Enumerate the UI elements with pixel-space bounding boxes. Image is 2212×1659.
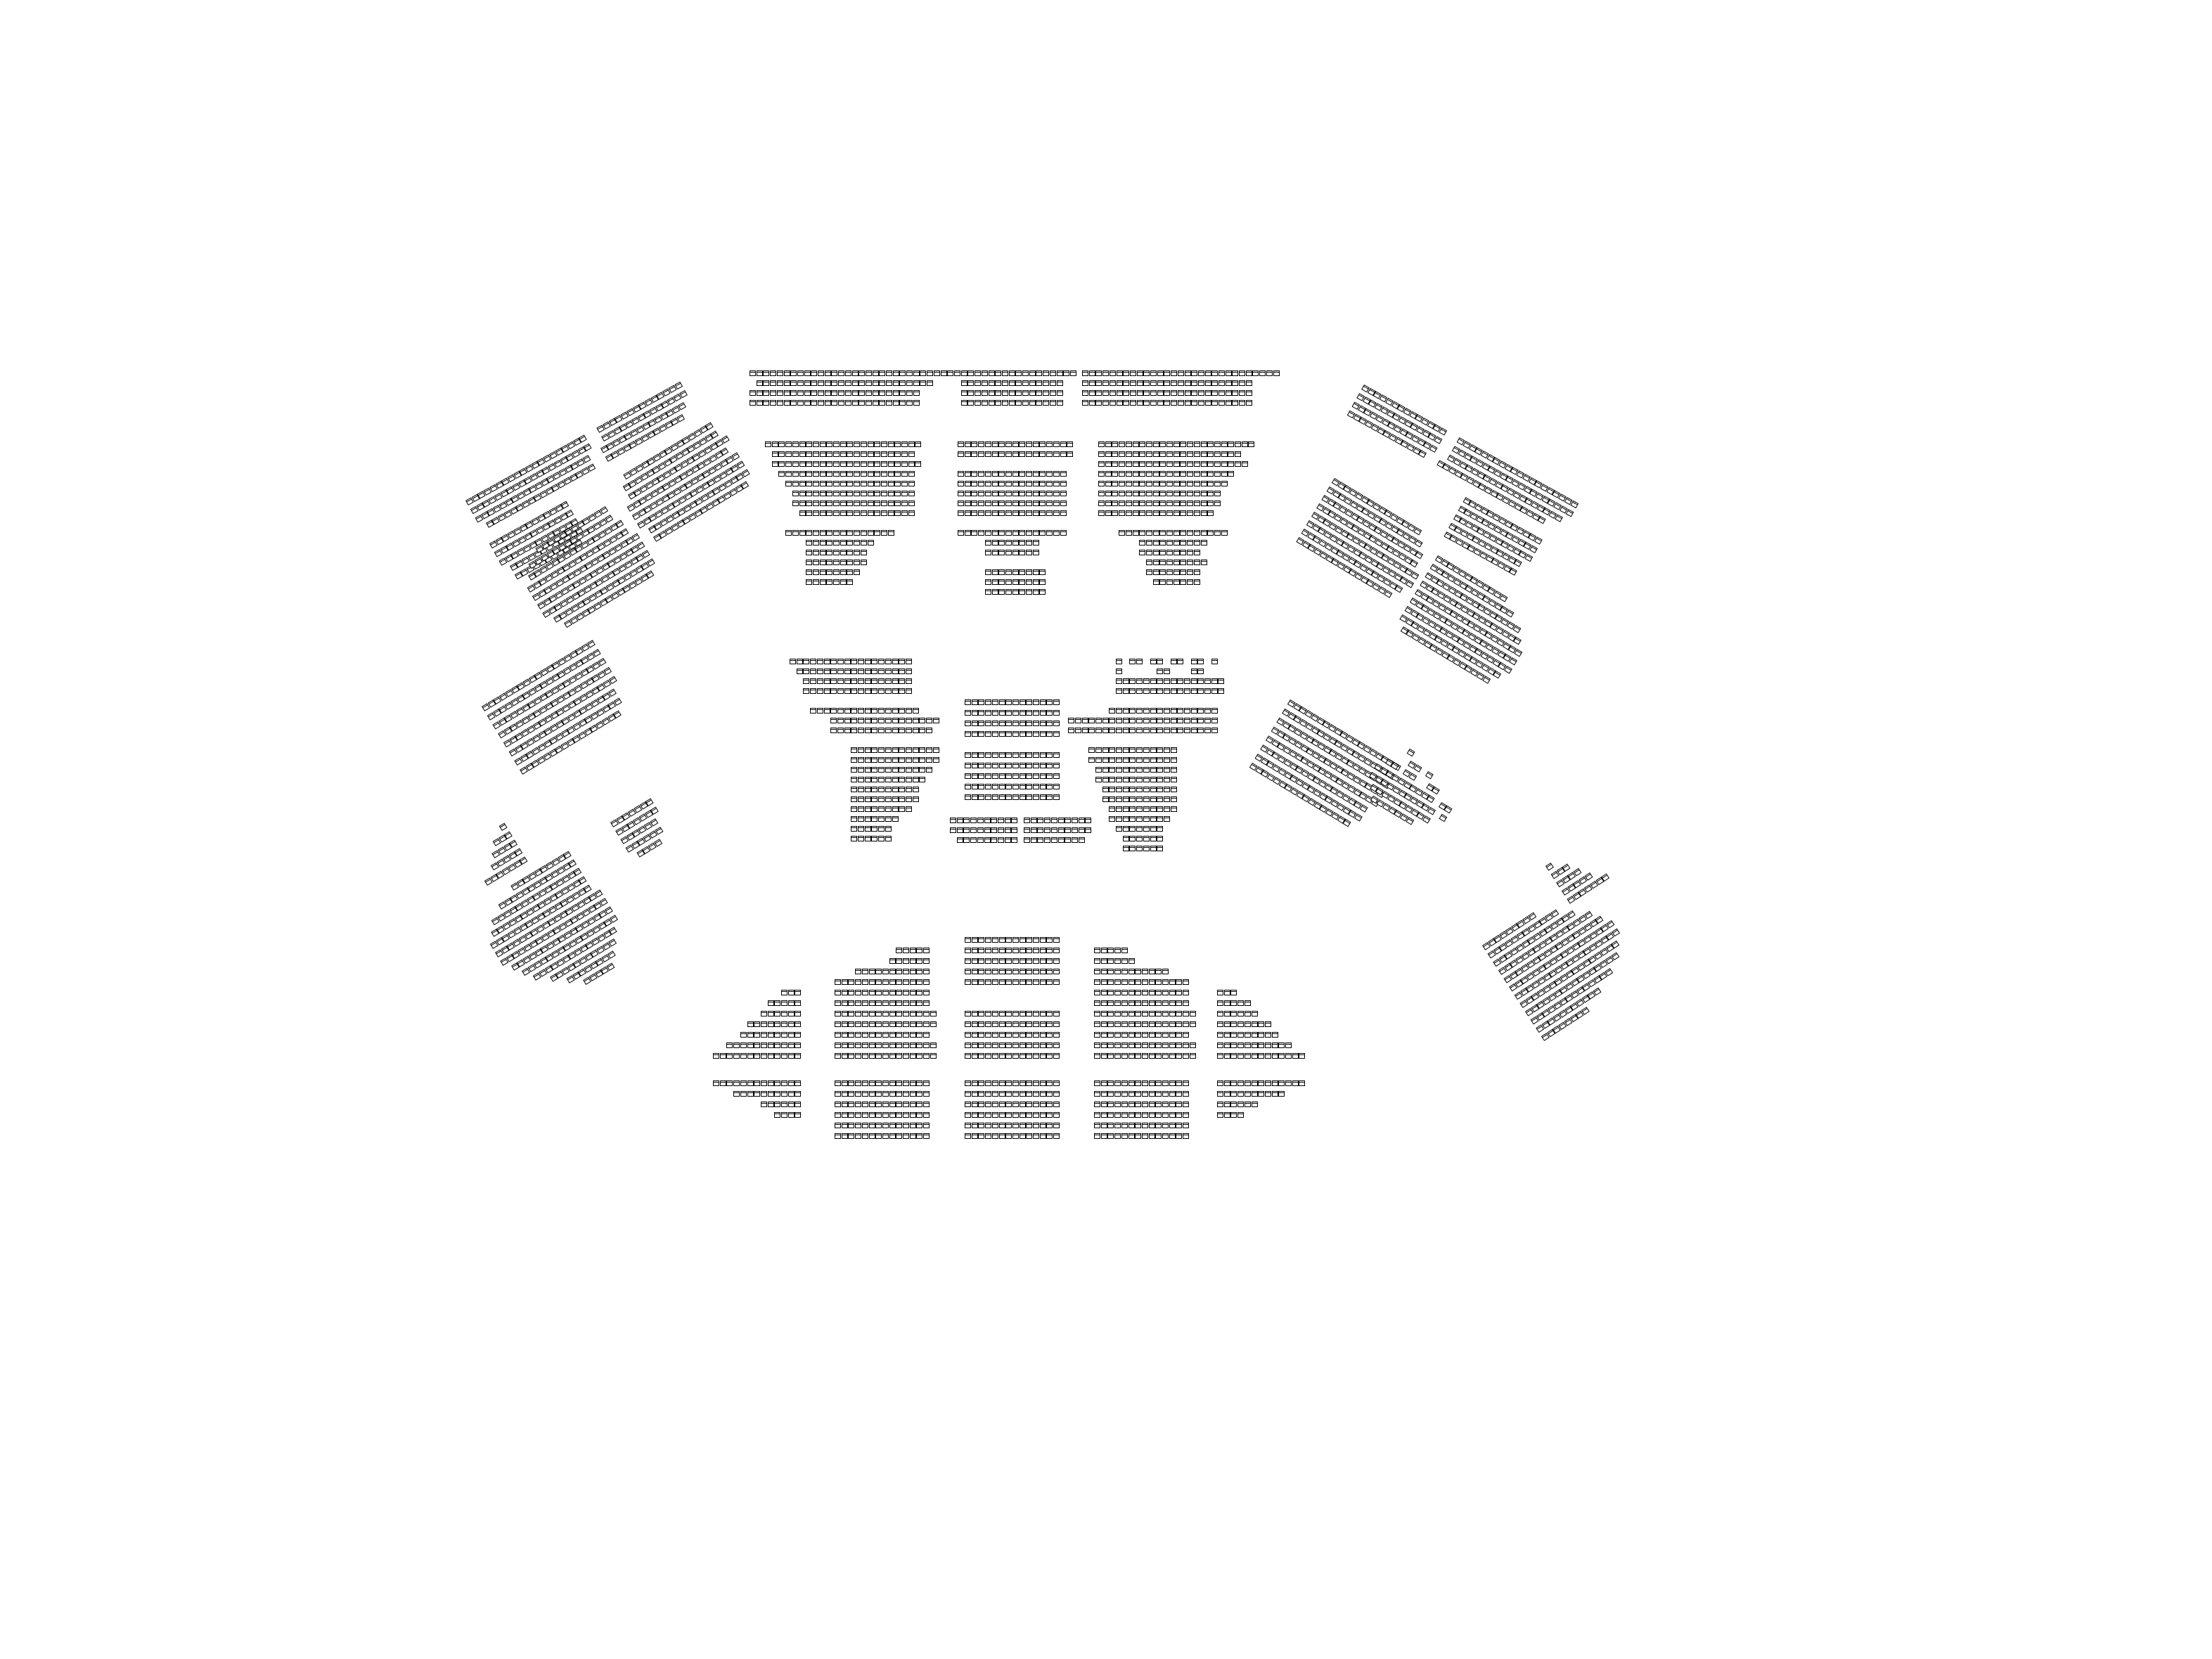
- seat[interactable]: [1183, 990, 1189, 995]
- seat[interactable]: [1019, 481, 1025, 486]
- seat[interactable]: [1102, 767, 1109, 773]
- seat[interactable]: [869, 1102, 875, 1107]
- seat[interactable]: [901, 471, 908, 477]
- seat[interactable]: [978, 1021, 984, 1027]
- seat[interactable]: [1109, 806, 1115, 812]
- seat[interactable]: [1119, 471, 1125, 477]
- seat[interactable]: [852, 390, 859, 396]
- seat[interactable]: [1129, 678, 1136, 684]
- seat[interactable]: [1116, 757, 1122, 763]
- seat[interactable]: [1107, 1000, 1114, 1006]
- seat[interactable]: [1157, 836, 1163, 841]
- seat[interactable]: [1012, 1053, 1019, 1059]
- seat[interactable]: [1129, 816, 1136, 822]
- seat[interactable]: [978, 937, 984, 943]
- seat[interactable]: [892, 796, 899, 802]
- seat[interactable]: [1171, 806, 1177, 812]
- seat[interactable]: [972, 1133, 978, 1139]
- seat[interactable]: [1015, 370, 1022, 376]
- seat[interactable]: [1136, 846, 1143, 851]
- seat[interactable]: [1123, 787, 1129, 792]
- seat[interactable]: [985, 501, 991, 506]
- seat[interactable]: [1020, 699, 1026, 705]
- seat[interactable]: [1173, 501, 1180, 506]
- seat[interactable]: [1053, 752, 1060, 758]
- seat[interactable]: [781, 1042, 787, 1048]
- seat[interactable]: [1009, 380, 1015, 386]
- seat[interactable]: [923, 1053, 930, 1059]
- seat[interactable]: [1285, 1080, 1292, 1086]
- seat[interactable]: [792, 491, 799, 496]
- seat[interactable]: [1088, 747, 1095, 753]
- seat[interactable]: [1159, 540, 1166, 546]
- seat[interactable]: [1067, 451, 1073, 457]
- seat[interactable]: [1157, 728, 1163, 733]
- seat[interactable]: [894, 481, 901, 486]
- seat[interactable]: [1265, 1032, 1271, 1038]
- seat[interactable]: [1039, 451, 1046, 457]
- seat[interactable]: [913, 728, 919, 733]
- seat[interactable]: [886, 370, 892, 376]
- seat[interactable]: [975, 380, 981, 386]
- seat[interactable]: [985, 471, 991, 477]
- seat[interactable]: [1169, 1032, 1176, 1038]
- seat[interactable]: [1112, 471, 1118, 477]
- seat[interactable]: [871, 728, 877, 733]
- seat[interactable]: [1114, 1011, 1121, 1016]
- seat[interactable]: [854, 530, 860, 536]
- seat[interactable]: [1040, 1080, 1046, 1086]
- seat[interactable]: [1226, 380, 1232, 386]
- seat[interactable]: [820, 501, 826, 506]
- seat[interactable]: [754, 1021, 760, 1027]
- seat[interactable]: [992, 1042, 998, 1048]
- seat[interactable]: [965, 1123, 971, 1128]
- seat[interactable]: [1128, 1053, 1135, 1059]
- seat[interactable]: [1217, 1011, 1223, 1016]
- seat[interactable]: [851, 718, 857, 723]
- seat[interactable]: [871, 796, 877, 802]
- seat[interactable]: [930, 1021, 937, 1027]
- seat[interactable]: [1272, 1053, 1278, 1059]
- seat[interactable]: [1176, 1133, 1182, 1139]
- seat[interactable]: [1211, 678, 1218, 684]
- seat[interactable]: [1162, 979, 1169, 985]
- seat[interactable]: [950, 818, 956, 823]
- seat[interactable]: [820, 579, 826, 585]
- seat[interactable]: [1133, 441, 1139, 447]
- seat[interactable]: [1094, 1000, 1100, 1006]
- seat[interactable]: [896, 1000, 902, 1006]
- seat[interactable]: [1169, 1123, 1176, 1128]
- seat[interactable]: [913, 777, 919, 782]
- seat[interactable]: [999, 794, 1005, 800]
- seat[interactable]: [848, 1123, 854, 1128]
- seat[interactable]: [1211, 718, 1218, 723]
- seat[interactable]: [896, 969, 902, 974]
- seat[interactable]: [1020, 731, 1026, 737]
- seat[interactable]: [985, 1042, 991, 1048]
- seat[interactable]: [1133, 491, 1139, 496]
- seat[interactable]: [1107, 1042, 1114, 1048]
- seat[interactable]: [881, 491, 887, 496]
- seat[interactable]: [778, 451, 785, 457]
- seat[interactable]: [790, 400, 797, 406]
- seat[interactable]: [1094, 1053, 1100, 1059]
- seat[interactable]: [1157, 708, 1163, 714]
- seat[interactable]: [1493, 671, 1501, 678]
- seat[interactable]: [847, 461, 853, 467]
- seat[interactable]: [1012, 491, 1019, 496]
- seat[interactable]: [1153, 501, 1159, 506]
- seat[interactable]: [992, 569, 998, 575]
- seat[interactable]: [861, 540, 867, 546]
- seat[interactable]: [1143, 400, 1150, 406]
- seat[interactable]: [1162, 1053, 1169, 1059]
- seat[interactable]: [999, 1080, 1005, 1086]
- seat[interactable]: [1012, 948, 1019, 953]
- seat[interactable]: [1079, 837, 1085, 843]
- seat[interactable]: [1142, 1032, 1148, 1038]
- seat[interactable]: [1044, 837, 1050, 843]
- seat[interactable]: [967, 370, 974, 376]
- seat[interactable]: [1137, 370, 1143, 376]
- seat[interactable]: [1166, 540, 1173, 546]
- seat[interactable]: [847, 550, 853, 555]
- seat[interactable]: [985, 794, 991, 800]
- seat[interactable]: [1050, 370, 1056, 376]
- seat[interactable]: [1176, 1102, 1182, 1107]
- seat[interactable]: [896, 1053, 902, 1059]
- seat[interactable]: [1176, 1042, 1182, 1048]
- seat[interactable]: [840, 550, 847, 555]
- seat[interactable]: [1079, 827, 1085, 833]
- seat[interactable]: [1033, 530, 1039, 536]
- seat[interactable]: [1150, 757, 1157, 763]
- seat[interactable]: [1114, 1053, 1121, 1059]
- seat[interactable]: [885, 718, 892, 723]
- seat[interactable]: [768, 1053, 774, 1059]
- seat[interactable]: [1031, 818, 1037, 823]
- seat[interactable]: [913, 767, 919, 773]
- seat[interactable]: [1114, 1032, 1121, 1038]
- seat[interactable]: [1033, 1011, 1039, 1016]
- seat[interactable]: [1128, 990, 1135, 995]
- seat[interactable]: [875, 1011, 882, 1016]
- seat[interactable]: [817, 678, 823, 684]
- seat[interactable]: [1094, 1080, 1100, 1086]
- seat[interactable]: [1033, 501, 1039, 506]
- seat[interactable]: [869, 1091, 875, 1097]
- seat[interactable]: [1201, 501, 1207, 506]
- seat[interactable]: [1136, 728, 1143, 733]
- seat[interactable]: [851, 787, 857, 792]
- seat[interactable]: [1214, 501, 1221, 506]
- seat[interactable]: [1183, 979, 1189, 985]
- seat[interactable]: [761, 1102, 767, 1107]
- seat[interactable]: [795, 1112, 801, 1118]
- seat[interactable]: [1123, 747, 1129, 753]
- seat[interactable]: [999, 1032, 1005, 1038]
- seat[interactable]: [824, 688, 830, 694]
- seat[interactable]: [750, 390, 756, 396]
- seat[interactable]: [1292, 1080, 1299, 1086]
- seat[interactable]: [1026, 721, 1032, 726]
- seat[interactable]: [1143, 787, 1150, 792]
- seat[interactable]: [835, 1011, 841, 1016]
- seat[interactable]: [1002, 370, 1008, 376]
- seat[interactable]: [1176, 1091, 1182, 1097]
- seat[interactable]: [1211, 400, 1218, 406]
- seat[interactable]: [1135, 1112, 1141, 1118]
- seat[interactable]: [992, 1080, 998, 1086]
- seat[interactable]: [930, 1011, 937, 1016]
- seat[interactable]: [806, 510, 812, 516]
- seat[interactable]: [858, 747, 864, 753]
- seat[interactable]: [965, 773, 971, 779]
- seat[interactable]: [1224, 1091, 1230, 1097]
- seat[interactable]: [1026, 1053, 1032, 1059]
- seat[interactable]: [903, 1133, 909, 1139]
- seat[interactable]: [1245, 1021, 1251, 1027]
- seat[interactable]: [1149, 979, 1155, 985]
- seat[interactable]: [1050, 380, 1056, 386]
- seat[interactable]: [1173, 461, 1180, 467]
- seat[interactable]: [865, 777, 871, 782]
- seat[interactable]: [1157, 816, 1163, 822]
- seat[interactable]: [1129, 777, 1136, 782]
- seat[interactable]: [1011, 827, 1017, 833]
- seat[interactable]: [871, 708, 877, 714]
- seat[interactable]: [1197, 728, 1204, 733]
- seat[interactable]: [835, 1112, 841, 1118]
- seat[interactable]: [1109, 796, 1115, 802]
- seat[interactable]: [1128, 1133, 1135, 1139]
- seat[interactable]: [999, 763, 1005, 768]
- seat[interactable]: [1105, 471, 1112, 477]
- seat[interactable]: [1019, 451, 1025, 457]
- seat[interactable]: [978, 958, 984, 964]
- seat[interactable]: [1177, 688, 1183, 694]
- seat[interactable]: [1135, 969, 1141, 974]
- seat[interactable]: [978, 1053, 984, 1059]
- seat[interactable]: [903, 1053, 909, 1059]
- seat[interactable]: [858, 796, 864, 802]
- seat[interactable]: [826, 540, 832, 546]
- seat[interactable]: [1110, 390, 1116, 396]
- seat[interactable]: [1142, 1102, 1148, 1107]
- seat[interactable]: [1085, 827, 1091, 833]
- seat[interactable]: [1136, 816, 1143, 822]
- seat[interactable]: [1135, 1042, 1141, 1048]
- seat[interactable]: [1157, 678, 1163, 684]
- seat[interactable]: [803, 688, 809, 694]
- seat[interactable]: [963, 837, 970, 843]
- seat[interactable]: [1252, 1021, 1258, 1027]
- seat[interactable]: [1538, 516, 1546, 524]
- seat[interactable]: [806, 540, 812, 546]
- seat[interactable]: [1012, 958, 1019, 964]
- seat[interactable]: [1237, 1032, 1244, 1038]
- seat[interactable]: [1143, 747, 1150, 753]
- seat[interactable]: [842, 1042, 848, 1048]
- seat[interactable]: [1046, 481, 1053, 486]
- seat[interactable]: [855, 1053, 861, 1059]
- seat[interactable]: [1173, 550, 1180, 555]
- seat[interactable]: [1180, 451, 1186, 457]
- seat[interactable]: [1272, 1080, 1278, 1086]
- seat[interactable]: [1012, 1080, 1019, 1086]
- seat[interactable]: [992, 773, 998, 779]
- seat[interactable]: [965, 699, 971, 705]
- seat[interactable]: [1180, 491, 1186, 496]
- seat[interactable]: [1043, 380, 1049, 386]
- seat[interactable]: [862, 1102, 868, 1107]
- seat[interactable]: [985, 1011, 991, 1016]
- seat[interactable]: [1114, 1091, 1121, 1097]
- seat[interactable]: [899, 806, 905, 812]
- seat[interactable]: [1566, 509, 1574, 517]
- seat[interactable]: [874, 501, 880, 506]
- seat[interactable]: [1012, 784, 1019, 789]
- seat[interactable]: [1026, 699, 1032, 705]
- seat[interactable]: [1020, 969, 1026, 974]
- seat[interactable]: [1123, 390, 1129, 396]
- seat[interactable]: [750, 400, 756, 406]
- seat[interactable]: [919, 777, 925, 782]
- seat[interactable]: [1198, 380, 1204, 386]
- seat[interactable]: [1026, 937, 1032, 943]
- seat[interactable]: [1053, 441, 1060, 447]
- seat[interactable]: [768, 1102, 774, 1107]
- seat[interactable]: [1272, 1091, 1278, 1097]
- seat[interactable]: [965, 958, 971, 964]
- seat[interactable]: [978, 501, 984, 506]
- seat[interactable]: [1157, 370, 1164, 376]
- seat[interactable]: [851, 777, 857, 782]
- seat[interactable]: [740, 1091, 747, 1097]
- seat[interactable]: [847, 441, 853, 447]
- seat[interactable]: [1019, 441, 1025, 447]
- seat[interactable]: [1150, 708, 1157, 714]
- seat[interactable]: [1121, 1042, 1128, 1048]
- seat[interactable]: [899, 757, 905, 763]
- seat[interactable]: [1053, 1032, 1060, 1038]
- seat[interactable]: [1116, 777, 1122, 782]
- seat[interactable]: [1142, 1123, 1148, 1128]
- seat[interactable]: [873, 380, 879, 386]
- seat[interactable]: [1143, 728, 1150, 733]
- seat[interactable]: [797, 400, 804, 406]
- seat[interactable]: [840, 461, 847, 467]
- seat[interactable]: [1012, 589, 1019, 595]
- seat[interactable]: [875, 1000, 882, 1006]
- seat[interactable]: [871, 787, 877, 792]
- seat[interactable]: [1162, 1080, 1169, 1086]
- seat[interactable]: [965, 1102, 971, 1107]
- seat[interactable]: [1176, 1112, 1182, 1118]
- seat[interactable]: [847, 530, 853, 536]
- seat[interactable]: [844, 678, 851, 684]
- seat[interactable]: [1121, 1053, 1128, 1059]
- seat[interactable]: [1005, 501, 1012, 506]
- seat[interactable]: [763, 400, 769, 406]
- seat[interactable]: [1095, 747, 1102, 753]
- seat[interactable]: [906, 806, 912, 812]
- seat[interactable]: [726, 1042, 733, 1048]
- seat[interactable]: [882, 1042, 889, 1048]
- seat[interactable]: [726, 1053, 733, 1059]
- seat[interactable]: [792, 481, 799, 486]
- seat[interactable]: [985, 441, 991, 447]
- seat[interactable]: [1221, 471, 1228, 477]
- seat[interactable]: [1012, 969, 1019, 974]
- seat[interactable]: [885, 688, 892, 694]
- seat[interactable]: [781, 1091, 787, 1097]
- seat[interactable]: [1218, 370, 1225, 376]
- seat[interactable]: [1482, 676, 1491, 683]
- seat[interactable]: [1005, 569, 1012, 575]
- seat[interactable]: [1082, 390, 1088, 396]
- seat[interactable]: [1136, 757, 1143, 763]
- seat[interactable]: [991, 837, 997, 843]
- seat[interactable]: [1043, 370, 1049, 376]
- seat[interactable]: [1139, 530, 1145, 536]
- seat[interactable]: [1207, 530, 1214, 536]
- seat[interactable]: [820, 441, 826, 447]
- seat[interactable]: [972, 773, 978, 779]
- seat[interactable]: [757, 390, 763, 396]
- seat[interactable]: [1224, 1032, 1230, 1038]
- seat[interactable]: [1101, 1021, 1107, 1027]
- seat[interactable]: [1039, 579, 1046, 585]
- seat[interactable]: [1133, 451, 1139, 457]
- seat[interactable]: [1005, 1011, 1012, 1016]
- seat[interactable]: [1166, 441, 1173, 447]
- seat[interactable]: [1248, 441, 1254, 447]
- seat[interactable]: [1116, 806, 1122, 812]
- seat[interactable]: [1026, 784, 1032, 789]
- seat[interactable]: [1278, 1091, 1285, 1097]
- seat[interactable]: [910, 1011, 916, 1016]
- seat[interactable]: [1094, 1011, 1100, 1016]
- seat[interactable]: [858, 678, 864, 684]
- seat[interactable]: [919, 757, 925, 763]
- seat[interactable]: [1046, 710, 1053, 716]
- seat[interactable]: [835, 1053, 841, 1059]
- seat[interactable]: [972, 1123, 978, 1128]
- seat[interactable]: [882, 1011, 889, 1016]
- seat[interactable]: [790, 390, 797, 396]
- seat[interactable]: [1098, 510, 1105, 516]
- seat[interactable]: [1114, 1080, 1121, 1086]
- seat[interactable]: [1197, 669, 1204, 674]
- seat[interactable]: [1075, 728, 1081, 733]
- seat[interactable]: [889, 1133, 896, 1139]
- seat[interactable]: [958, 441, 964, 447]
- seat[interactable]: [1155, 1112, 1162, 1118]
- seat[interactable]: [875, 1032, 882, 1038]
- seat[interactable]: [972, 958, 978, 964]
- seat[interactable]: [916, 1000, 922, 1006]
- seat[interactable]: [992, 1112, 998, 1118]
- seat[interactable]: [1082, 728, 1088, 733]
- seat[interactable]: [1221, 451, 1228, 457]
- seat[interactable]: [1129, 708, 1136, 714]
- seat[interactable]: [799, 471, 806, 477]
- seat[interactable]: [903, 1011, 909, 1016]
- seat[interactable]: [1116, 747, 1122, 753]
